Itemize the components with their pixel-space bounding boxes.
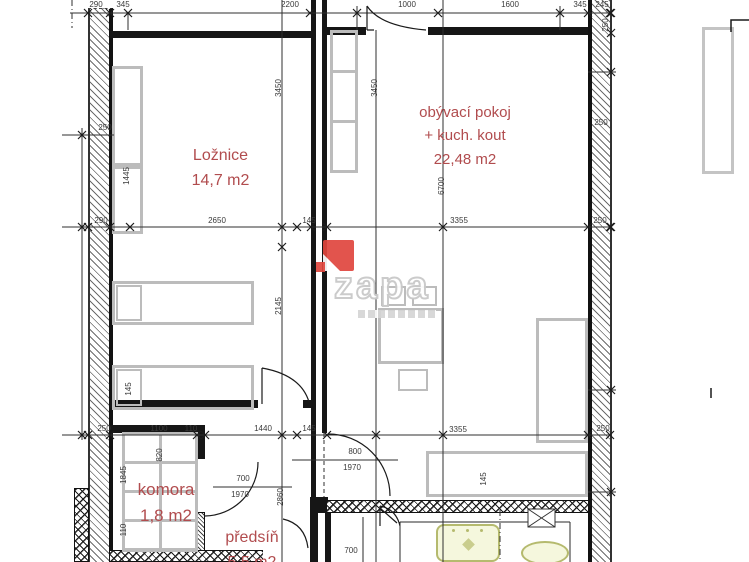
floor-plan: zapa Ložnice 14,7 m2 obývací pokoj + kuc… <box>0 0 749 562</box>
dim-label: 345 <box>116 1 129 9</box>
dim-label: 245 <box>595 1 608 9</box>
dim-label: 1845 <box>120 466 128 484</box>
dim-label: 3355 <box>449 426 467 434</box>
dim-label: 2145 <box>275 297 283 315</box>
dim-label: 3450 <box>275 79 283 97</box>
dim-label: 3450 <box>371 79 379 97</box>
dim-layer: 2903452200100016003452452502502502902650… <box>0 0 749 562</box>
dim-label: 145 <box>125 382 133 395</box>
dim-label: 145 <box>302 217 315 225</box>
dim-label: 145 <box>480 472 488 485</box>
dim-label: 700 <box>344 547 357 555</box>
dim-label: 1445 <box>123 167 131 185</box>
dim-label: 345 <box>573 1 586 9</box>
dim-label: 1100 <box>150 425 167 433</box>
dim-label: 1440 <box>254 425 272 433</box>
dim-label: 820 <box>156 448 164 461</box>
dim-label: 1600 <box>501 1 519 9</box>
dim-label: 250 <box>594 119 607 127</box>
dim-label: 1000 <box>398 1 416 9</box>
dim-label: 145 <box>302 425 315 433</box>
dim-label: 110 <box>120 524 128 537</box>
dim-label: 250 <box>98 124 111 132</box>
dim-label: 2200 <box>281 1 299 9</box>
dim-label: 110 <box>185 425 198 433</box>
dim-label: 1970 <box>231 491 249 499</box>
dim-label: 250 <box>593 217 606 225</box>
dim-label: 800 <box>348 448 361 456</box>
dim-label: 6700 <box>438 177 446 195</box>
dim-label: 700 <box>236 475 249 483</box>
dim-label: 2650 <box>208 217 226 225</box>
dim-label: 290 <box>89 1 102 9</box>
dim-label: 250 <box>97 425 110 433</box>
dim-label: 250 <box>602 18 610 31</box>
dim-label: 1970 <box>343 464 361 472</box>
dim-label: 2860 <box>277 488 285 506</box>
dim-label: 250 <box>596 425 609 433</box>
dim-label: 290 <box>94 217 107 225</box>
dim-label: 3355 <box>450 217 468 225</box>
